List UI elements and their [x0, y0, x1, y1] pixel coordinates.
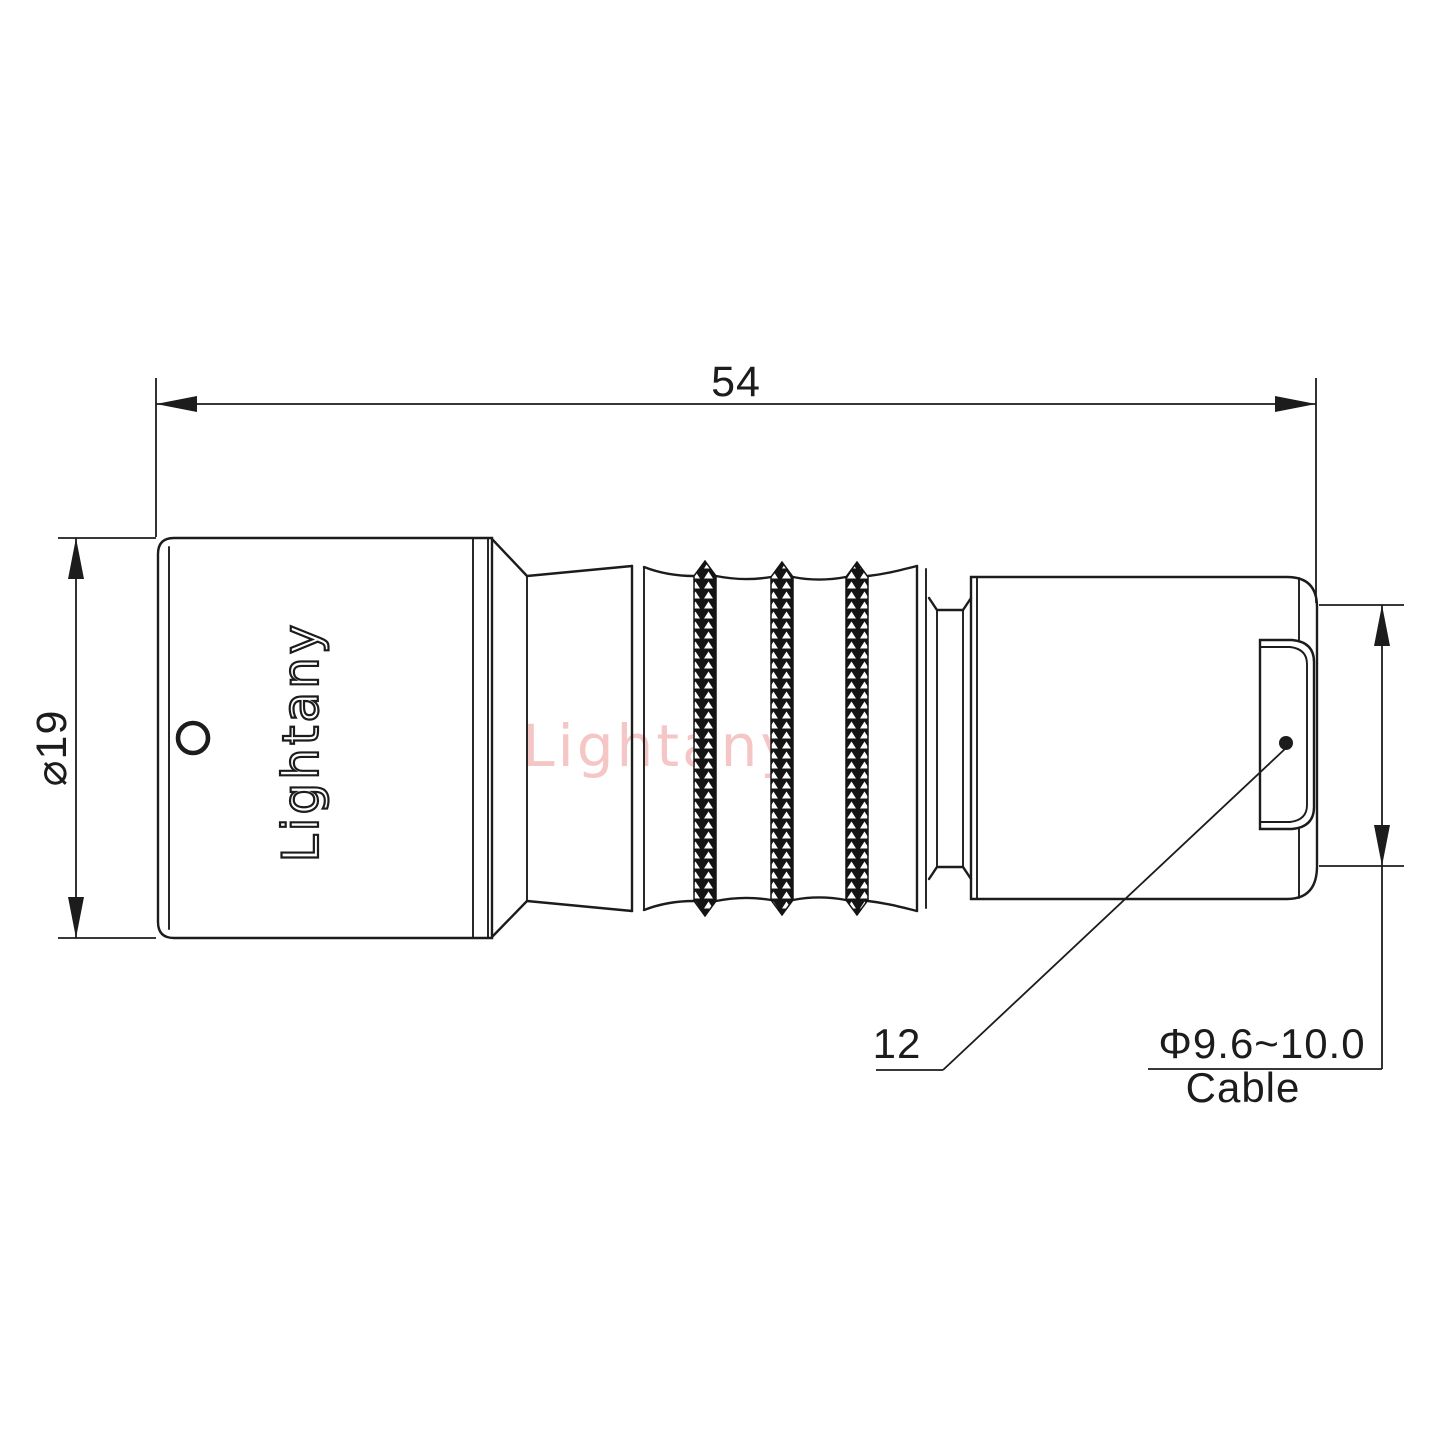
neck-fill — [929, 598, 971, 879]
knurl-band-2 — [771, 562, 793, 915]
technical-drawing-canvas: Lightany Lightany — [0, 0, 1440, 1440]
neck-top-profile — [929, 598, 971, 610]
dim54-value: 54 — [711, 358, 761, 406]
dim19-arrow-top — [68, 538, 84, 579]
knurl-band-3 — [846, 562, 868, 915]
dim12-value: 12 — [873, 1020, 922, 1067]
dim19-value: ⌀19 — [28, 710, 76, 787]
dim54-arrow-left — [156, 396, 197, 412]
watermark: Lightany — [522, 712, 797, 780]
body-hole-icon — [178, 723, 208, 753]
body-logo: Lightany — [272, 622, 330, 863]
dim12-leader-dot — [1279, 736, 1293, 750]
dim-body-diameter: ⌀19 — [28, 538, 156, 938]
dimcable-value: Φ9.6~10.0 — [1158, 1020, 1365, 1067]
connector-drawing: Lightany Lightany — [0, 0, 1440, 1440]
dimcable-arrow-bottom — [1374, 825, 1390, 866]
cable-boot — [1260, 640, 1314, 829]
dimcable-label: Cable — [1186, 1064, 1301, 1111]
dim54-arrow-right — [1275, 396, 1316, 412]
neck-bottom-profile — [929, 867, 971, 879]
dimcable-arrow-top — [1374, 605, 1390, 646]
knurl-band-1 — [694, 561, 716, 916]
dim19-arrow-bottom — [68, 897, 84, 938]
